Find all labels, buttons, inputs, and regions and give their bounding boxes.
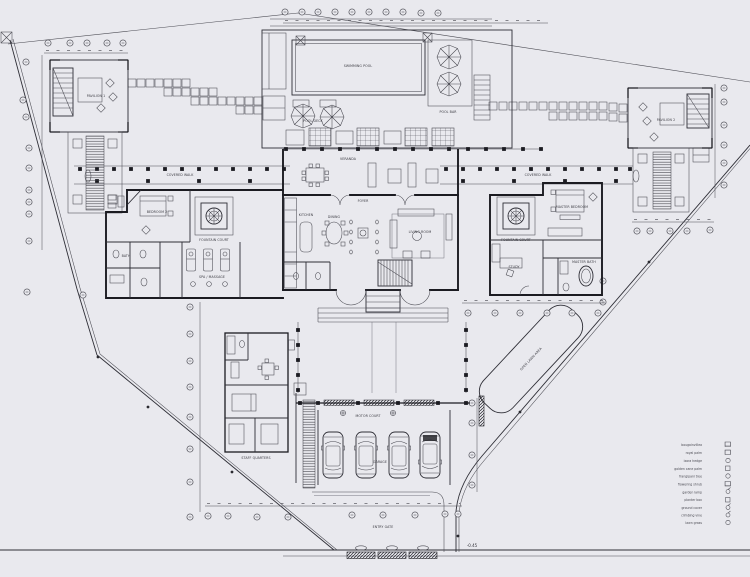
legend-label-1: bougainvillea [681, 443, 702, 447]
paper-background [0, 0, 750, 577]
bath2-label: BATH [122, 254, 131, 258]
legend-label-6: flowering shrub [678, 482, 702, 486]
legend-label-2: royal palm [686, 451, 702, 455]
motor-court-label: MOTOR COURT [355, 414, 380, 418]
mbr-label: MASTER BEDROOM [556, 205, 588, 209]
court-east-label: FOUNTAIN COURT [501, 238, 531, 242]
pool-label: SWIMMING POOL [344, 64, 373, 68]
legend-label-10: climbing vine [681, 513, 702, 517]
legend-label-11: lawn grass [685, 521, 702, 525]
entry-gate-label: ENTRY GATE [373, 525, 394, 529]
court-lamp-1 [340, 410, 345, 415]
bar-label: POOL BAR [439, 110, 457, 114]
pavilion2-label: PAVILION 2 [657, 118, 675, 122]
walk-east-label: COVERED WALK [525, 173, 553, 177]
fountain-east [497, 197, 535, 235]
study-label: STUDY [508, 265, 519, 269]
legend-label-8: planter box [684, 498, 702, 502]
fountain-west [195, 197, 233, 235]
floor-plan-drawing: OPEN LAWN AREA [0, 0, 750, 577]
spa-label: SPA / MASSAGE [199, 275, 225, 279]
garage-label: GARAGE [373, 460, 387, 464]
grid-square-icon [725, 482, 731, 487]
mbath-label: MASTER BATH [572, 260, 596, 264]
terrace-colonnade [283, 147, 543, 151]
grid-square-icon [725, 442, 731, 447]
deck-label: POOL DECK [303, 119, 323, 123]
legend-label-9: ground cover [681, 506, 702, 510]
grid-square-icon [725, 450, 731, 455]
legend-label-4: golden cane palm [674, 467, 702, 471]
level-note: -0.45 [467, 543, 478, 548]
legend-label-3: ixora hedge [684, 459, 702, 463]
legend-label-7: garden lamp [682, 490, 702, 494]
court-west-label: FOUNTAIN COURT [199, 238, 229, 242]
pavilion1-label: PAVILION 1 [87, 94, 105, 98]
staff-label: STAFF QUARTERS [241, 456, 270, 460]
kitchen-label: KITCHEN [299, 213, 314, 217]
dining-label: DINING [328, 215, 341, 219]
living-label: LIVING ROOM [409, 230, 432, 234]
walk-west-label: COVERED WALK [167, 173, 195, 177]
legend-label-5: frangipani tree [679, 475, 702, 479]
side-gate [479, 396, 484, 426]
veranda-label: VERANDA [340, 157, 357, 161]
floor-plan-sheet: OPEN LAWN AREA [0, 0, 750, 577]
court-lamp-2 [390, 410, 395, 415]
foyer-label: FOYER [358, 199, 370, 203]
bed2-label: BEDROOM 2 [147, 210, 168, 214]
